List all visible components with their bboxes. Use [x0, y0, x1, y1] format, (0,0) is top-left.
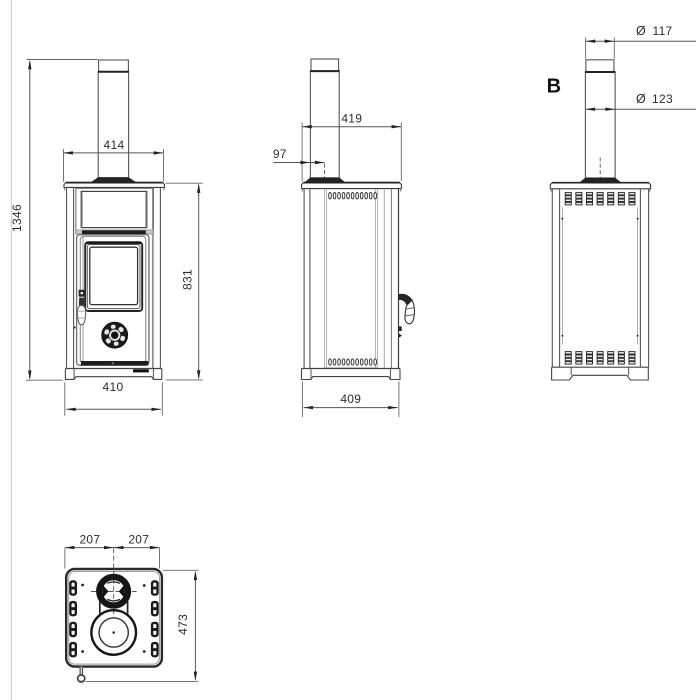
svg-text:410: 410 [103, 380, 124, 394]
svg-text:207: 207 [128, 533, 149, 547]
svg-text:97: 97 [273, 147, 287, 161]
svg-text:Ø: Ø [636, 24, 646, 38]
svg-text:123: 123 [652, 92, 673, 106]
svg-text:473: 473 [176, 614, 190, 635]
svg-text:117: 117 [652, 24, 672, 38]
svg-text:207: 207 [79, 533, 100, 547]
svg-text:1346: 1346 [10, 204, 24, 232]
svg-text:419: 419 [341, 112, 362, 126]
svg-text:831: 831 [181, 269, 195, 290]
svg-text:Ø: Ø [636, 92, 646, 106]
svg-text:414: 414 [104, 138, 125, 152]
svg-text:B: B [547, 76, 562, 98]
svg-text:409: 409 [340, 392, 361, 406]
